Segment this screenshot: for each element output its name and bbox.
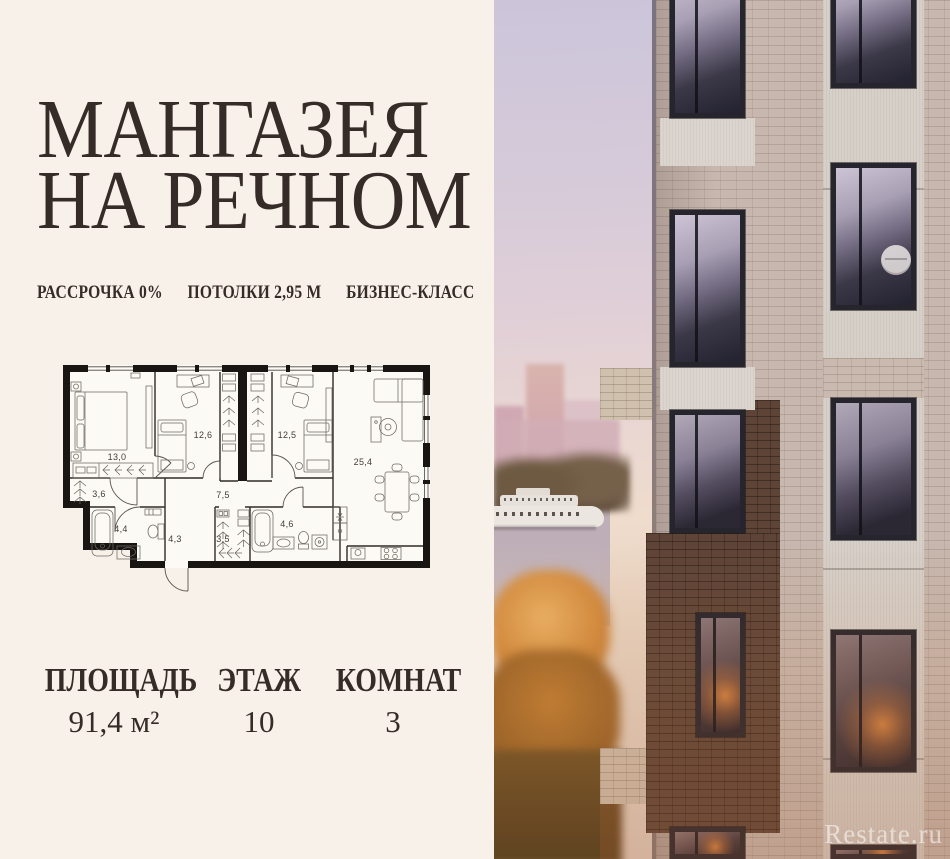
room-label-3-5: 3,5 xyxy=(216,534,229,544)
building-side-face xyxy=(600,0,652,859)
room-label-4-6: 4,6 xyxy=(280,519,293,529)
title-line-2: НА РЕЧНОМ xyxy=(37,165,471,236)
feature-installment: РАССРОЧКА 0% xyxy=(37,282,163,304)
feature-class: БИЗНЕС-КЛАСС xyxy=(346,282,474,304)
side-brick-band xyxy=(600,368,652,420)
facade-window xyxy=(696,613,745,737)
facade-window xyxy=(670,410,745,533)
facade-window xyxy=(831,163,916,310)
spandrel-panel xyxy=(660,367,755,410)
stat-rooms-value: 3 xyxy=(322,705,464,739)
ship-hull-windows xyxy=(496,512,580,516)
ship-deck-windows xyxy=(504,498,572,501)
stat-rooms-label: КОМНАТ xyxy=(336,664,461,698)
facade-window xyxy=(670,210,745,367)
building-photo: Restate.ru xyxy=(494,0,950,859)
facade-window xyxy=(670,827,745,859)
floor-plan: 13,0 12,6 12,5 25,4 3,6 7,5 4,4 4,3 3,5 … xyxy=(55,360,435,595)
furniture-wardrobe xyxy=(74,481,86,504)
cruise-ship xyxy=(494,488,604,532)
brick-band xyxy=(823,358,924,398)
stat-area: ПЛОЩАДЬ 91,4 м² xyxy=(28,664,200,739)
stat-floor-label: ЭТАЖ xyxy=(217,664,301,698)
stat-rooms: КОМНАТ 3 xyxy=(322,664,464,739)
listing-card: МАНГАЗЕЯ НА РЕЧНОМ РАССРОЧКА 0% ПОТОЛКИ … xyxy=(0,0,950,859)
room-label-4-3: 4,3 xyxy=(168,534,181,544)
room-label-4-4: 4,4 xyxy=(114,524,127,534)
room-label-12-6: 12,6 xyxy=(194,430,213,440)
stat-area-value: 91,4 м² xyxy=(28,705,200,739)
room-label-12-5: 12,5 xyxy=(278,430,297,440)
project-title: МАНГАЗЕЯ НА РЕЧНОМ xyxy=(37,94,471,236)
facade-window xyxy=(831,398,916,540)
stat-area-label: ПЛОЩАДЬ xyxy=(45,664,198,698)
side-brick-band xyxy=(600,748,652,804)
room-label-7-5: 7,5 xyxy=(216,490,229,500)
stat-floor: ЭТАЖ 10 xyxy=(196,664,322,739)
stats-row: ПЛОЩАДЬ 91,4 м² ЭТАЖ 10 КОМНАТ 3 xyxy=(0,664,494,754)
room-label-3-6: 3,6 xyxy=(92,489,105,499)
room-label-13-0: 13,0 xyxy=(108,452,127,462)
facade-window xyxy=(831,0,916,88)
feature-ceilings: ПОТОЛКИ 2,95 М xyxy=(187,282,321,304)
watermark: Restate.ru xyxy=(824,819,943,850)
dark-brick-upper xyxy=(744,400,780,533)
window-sticker xyxy=(881,245,911,275)
info-panel: МАНГАЗЕЯ НА РЕЧНОМ РАССРОЧКА 0% ПОТОЛКИ … xyxy=(0,0,494,859)
room-label-25-4: 25,4 xyxy=(354,457,373,467)
facade-window xyxy=(831,630,916,772)
residential-building xyxy=(600,0,950,859)
feature-list: РАССРОЧКА 0% ПОТОЛКИ 2,95 М БИЗНЕС-КЛАСС xyxy=(37,282,475,304)
ship-shadow xyxy=(494,526,596,530)
spandrel-panel xyxy=(660,118,755,166)
stat-floor-value: 10 xyxy=(196,705,322,739)
ship-hull xyxy=(494,506,604,527)
facade-window xyxy=(670,0,745,118)
